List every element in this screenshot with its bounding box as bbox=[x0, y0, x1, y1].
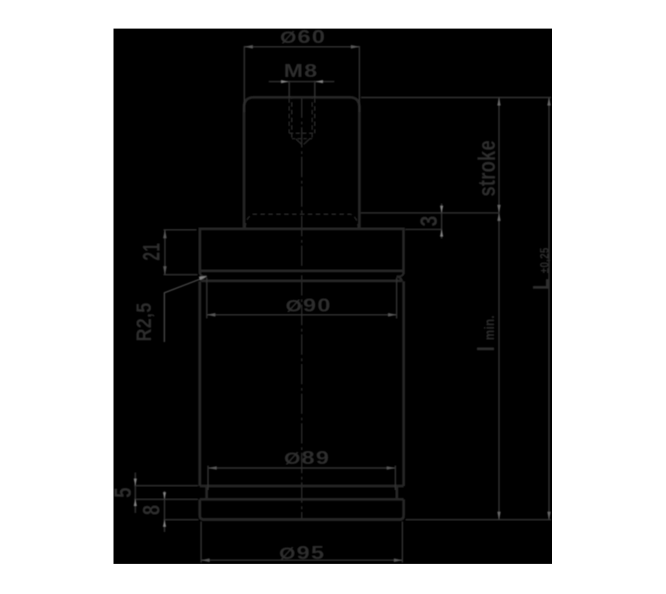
svg-text:R2,5: R2,5 bbox=[132, 302, 156, 341]
svg-text:8: 8 bbox=[139, 504, 165, 515]
svg-text:M8: M8 bbox=[284, 61, 319, 82]
svg-text:Ø95: Ø95 bbox=[279, 542, 325, 563]
svg-text:5: 5 bbox=[110, 487, 137, 498]
svg-text:Ø89: Ø89 bbox=[284, 447, 330, 468]
svg-text:21: 21 bbox=[139, 243, 165, 261]
svg-text:3: 3 bbox=[415, 215, 442, 227]
svg-text:stroke: stroke bbox=[475, 140, 501, 196]
svg-text:Ø90: Ø90 bbox=[286, 295, 332, 316]
svg-text:Ø60: Ø60 bbox=[280, 26, 326, 47]
